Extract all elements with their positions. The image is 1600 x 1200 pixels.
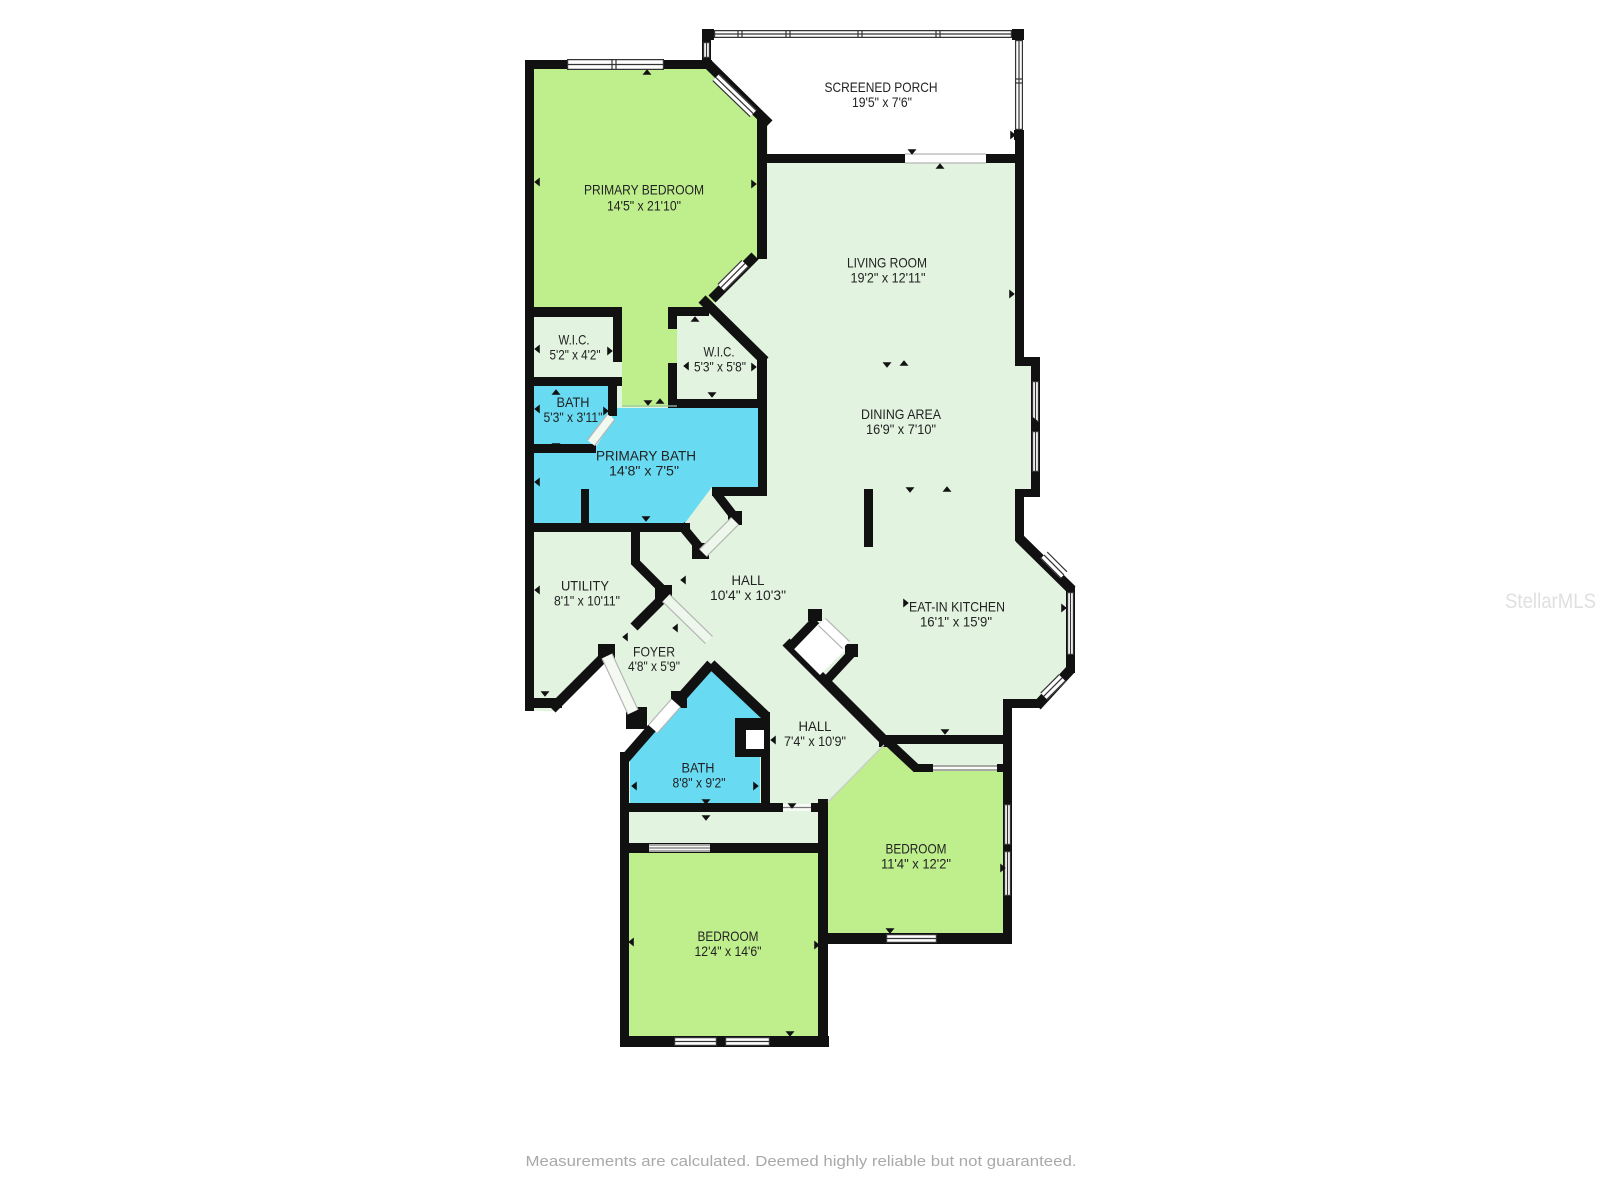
svg-text:19'2" x 12'11": 19'2" x 12'11" xyxy=(851,270,926,286)
svg-text:19'5" x 7'6": 19'5" x 7'6" xyxy=(852,94,912,110)
svg-text:Measurements are calculated. D: Measurements are calculated. Deemed high… xyxy=(526,1153,1077,1170)
svg-text:10'4" x 10'3": 10'4" x 10'3" xyxy=(710,587,786,603)
svg-text:4'8" x 5'9": 4'8" x 5'9" xyxy=(628,658,680,674)
svg-text:8'1" x 10'11": 8'1" x 10'11" xyxy=(554,593,620,609)
svg-text:LIVING ROOM: LIVING ROOM xyxy=(847,255,927,271)
svg-text:14'8" x 7'5": 14'8" x 7'5" xyxy=(609,463,679,479)
svg-text:W.I.C.: W.I.C. xyxy=(559,332,590,348)
svg-text:5'3" x 5'8": 5'3" x 5'8" xyxy=(694,359,746,375)
svg-text:StellarMLS: StellarMLS xyxy=(1505,590,1596,613)
svg-text:HALL: HALL xyxy=(732,572,765,588)
svg-text:PRIMARY BEDROOM: PRIMARY BEDROOM xyxy=(584,182,704,198)
svg-text:HALL: HALL xyxy=(799,718,832,734)
svg-text:12'4" x 14'6": 12'4" x 14'6" xyxy=(695,943,762,959)
svg-text:5'2" x 4'2": 5'2" x 4'2" xyxy=(550,347,601,363)
svg-text:5'3" x 3'11": 5'3" x 3'11" xyxy=(544,409,603,425)
svg-text:8'8" x 9'2": 8'8" x 9'2" xyxy=(673,775,726,791)
svg-text:EAT-IN KITCHEN: EAT-IN KITCHEN xyxy=(909,599,1005,615)
svg-text:16'9" x 7'10": 16'9" x 7'10" xyxy=(866,421,936,437)
svg-text:SCREENED PORCH: SCREENED PORCH xyxy=(825,79,938,95)
svg-text:DINING AREA: DINING AREA xyxy=(861,406,942,422)
svg-text:BEDROOM: BEDROOM xyxy=(886,841,947,857)
svg-text:BATH: BATH xyxy=(557,394,590,410)
svg-text:PRIMARY BATH: PRIMARY BATH xyxy=(596,448,696,464)
svg-text:BEDROOM: BEDROOM xyxy=(698,928,759,944)
svg-text:11'4" x 12'2": 11'4" x 12'2" xyxy=(881,856,951,872)
svg-text:BATH: BATH xyxy=(682,760,715,776)
svg-text:7'4" x 10'9": 7'4" x 10'9" xyxy=(784,733,846,749)
svg-text:W.I.C.: W.I.C. xyxy=(704,344,735,360)
svg-text:16'1" x 15'9": 16'1" x 15'9" xyxy=(920,614,992,630)
svg-text:UTILITY: UTILITY xyxy=(561,578,610,594)
svg-text:14'5" x 21'10": 14'5" x 21'10" xyxy=(607,198,681,214)
